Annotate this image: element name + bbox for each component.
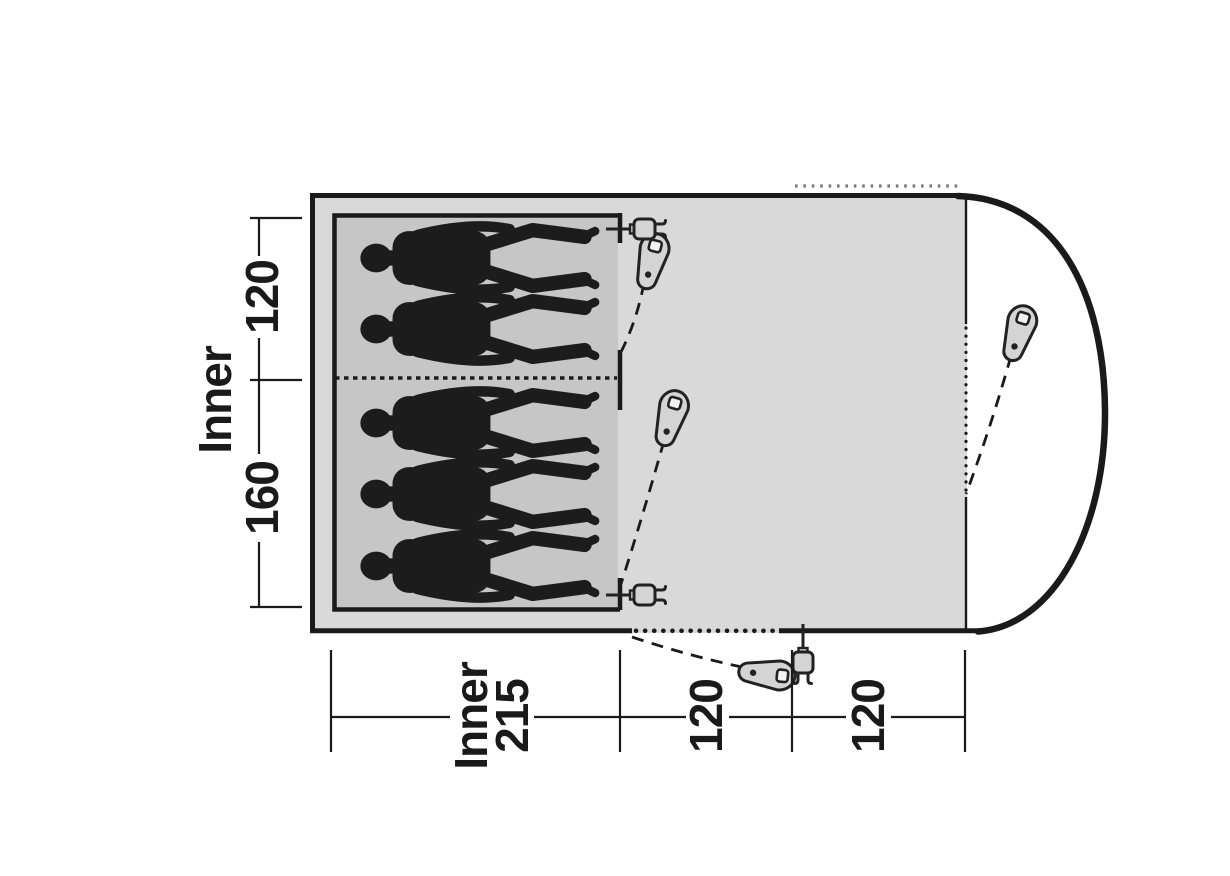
bottom-dimension-value-120-b: 120 <box>842 679 894 753</box>
front-door-zip-line <box>966 356 1011 494</box>
left-dimension-value-120: 120 <box>236 260 288 334</box>
bottom-dimension-inner-215: 215 <box>486 679 538 753</box>
left-dimension-title: Inner <box>189 345 241 454</box>
tent-floorplan-diagram: Inner 120 160 Inner 215 120 120 <box>0 0 1230 876</box>
porch-canopy-outline <box>958 196 1105 632</box>
floorplan-svg: Inner 120 160 Inner 215 120 120 <box>0 0 1230 876</box>
zip-puller-icon <box>737 657 796 692</box>
left-dimension-value-160: 160 <box>236 461 288 535</box>
bottom-dimension-value-120-a: 120 <box>680 679 732 753</box>
side-door-zip-line <box>632 637 747 668</box>
zip-puller-icon <box>996 302 1040 364</box>
